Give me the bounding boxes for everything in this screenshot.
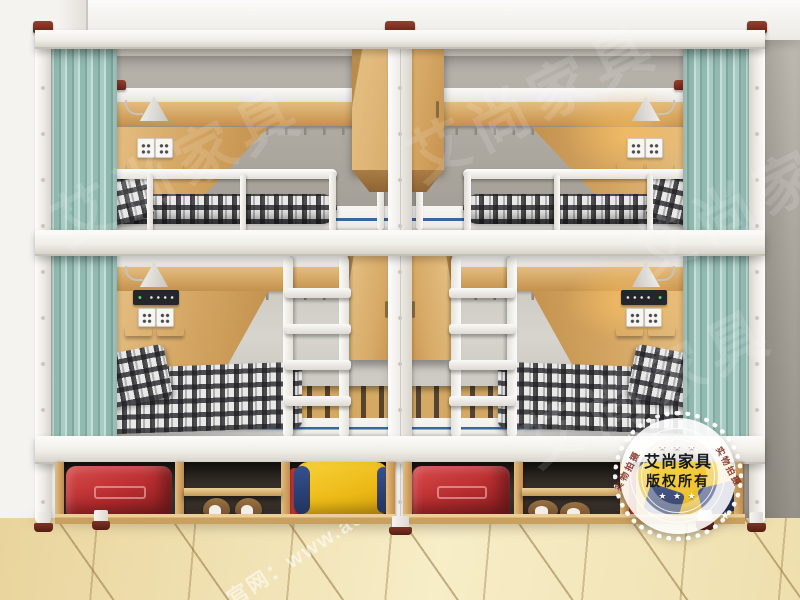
red-suitcase (412, 466, 510, 516)
red-suitcase (66, 466, 172, 516)
upper-power-outlet (645, 138, 663, 158)
usb-charging-panel (621, 290, 667, 305)
lower-power-outlet (626, 308, 644, 327)
ladder-rung (285, 396, 351, 406)
ladder-rung (285, 360, 351, 370)
lower-wall-shelf (157, 326, 184, 336)
yellow-duffel-bag (296, 462, 388, 516)
ladder-rung (449, 288, 515, 298)
hanging-cabinet (407, 254, 452, 360)
slippers (528, 500, 558, 515)
storage-divider (281, 462, 290, 518)
storage-side-panel (55, 462, 64, 522)
badge-center: ★ ★ ★ 艾尚家具 版权所有 ★ ★ ★ (620, 442, 736, 502)
lower-wall-shelf (125, 326, 152, 336)
copyright-badge: 实物拍摄 实物拍摄 ★ ★ ★ 艾尚家具 版权所有 ★ ★ ★ (620, 418, 736, 534)
foot-pad (389, 527, 412, 535)
storage-divider (175, 462, 184, 518)
ladder-rail (283, 256, 293, 438)
wall-shadow (765, 40, 800, 522)
hanging-cabinet (348, 254, 393, 360)
lower-wall-shelf (616, 326, 643, 336)
guard-rail-post (554, 174, 560, 232)
guard-rail-post (329, 172, 336, 232)
shoes (203, 498, 230, 515)
storage-side-panel (386, 462, 395, 522)
badge-copyright-text: 版权所有 (646, 473, 710, 491)
storage-shelf (184, 488, 281, 496)
foot-pad (34, 523, 53, 532)
upper-power-outlet (627, 138, 645, 158)
bunk-bed-room-photo: 官网：www.a50 com (0, 0, 800, 600)
badge-brand-text: 艾尚家具 (644, 453, 712, 473)
lower-power-outlet (138, 308, 156, 327)
lower-power-outlet (156, 308, 174, 327)
ladder-rung (285, 324, 351, 334)
ladder-rail (339, 256, 349, 438)
storage-shelf (522, 488, 621, 496)
ladder-rail (451, 256, 461, 438)
ladder-rung (449, 360, 515, 370)
lower-power-outlet (644, 308, 662, 327)
badge-stars: ★ ★ ★ (658, 491, 697, 502)
foot-pad (747, 523, 766, 532)
ladder-rung (449, 324, 515, 334)
storage-side-panel (403, 462, 412, 522)
shoes (235, 498, 262, 515)
guard-rail-post (240, 174, 246, 232)
lower-privacy-curtain (46, 250, 117, 442)
foot-pad (92, 521, 110, 530)
guard-rail-post (464, 172, 471, 232)
ladder-rung (285, 288, 351, 298)
badge-stars: ★ ★ ★ (658, 442, 697, 453)
ladder-rung (449, 396, 515, 406)
usb-charging-panel (133, 290, 179, 305)
